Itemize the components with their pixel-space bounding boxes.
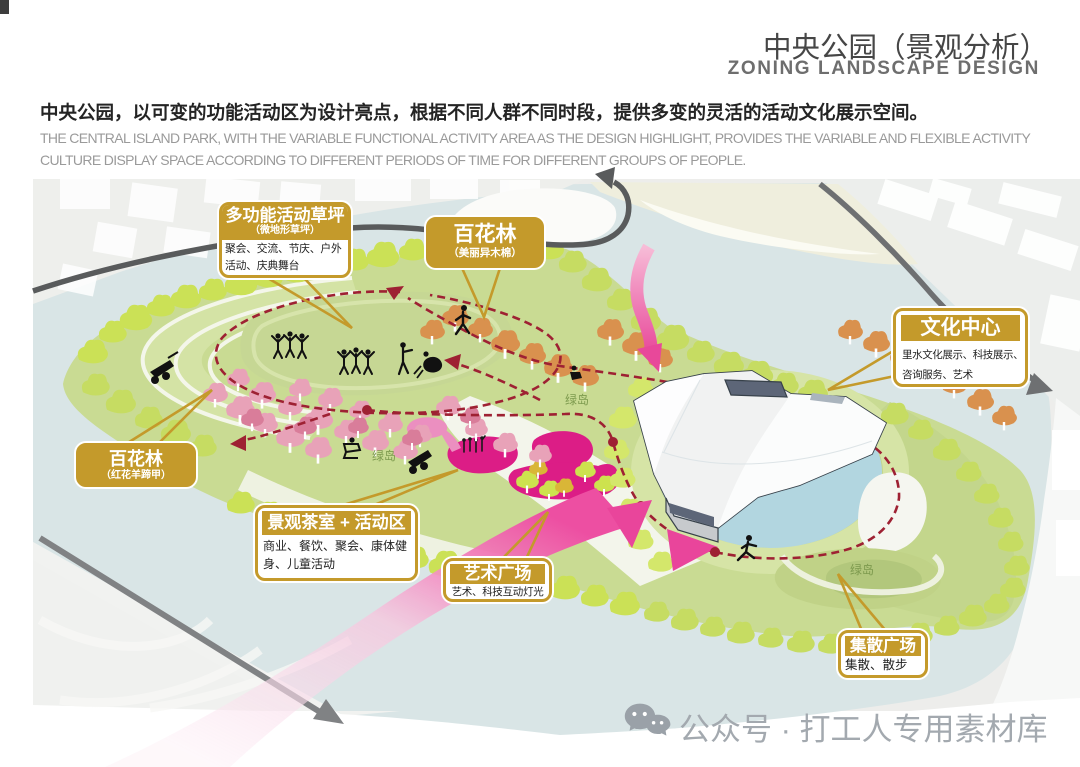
svg-text:绿岛: 绿岛 (372, 448, 396, 463)
svg-text:绿岛: 绿岛 (850, 562, 874, 577)
svg-text:绿岛: 绿岛 (565, 392, 589, 407)
